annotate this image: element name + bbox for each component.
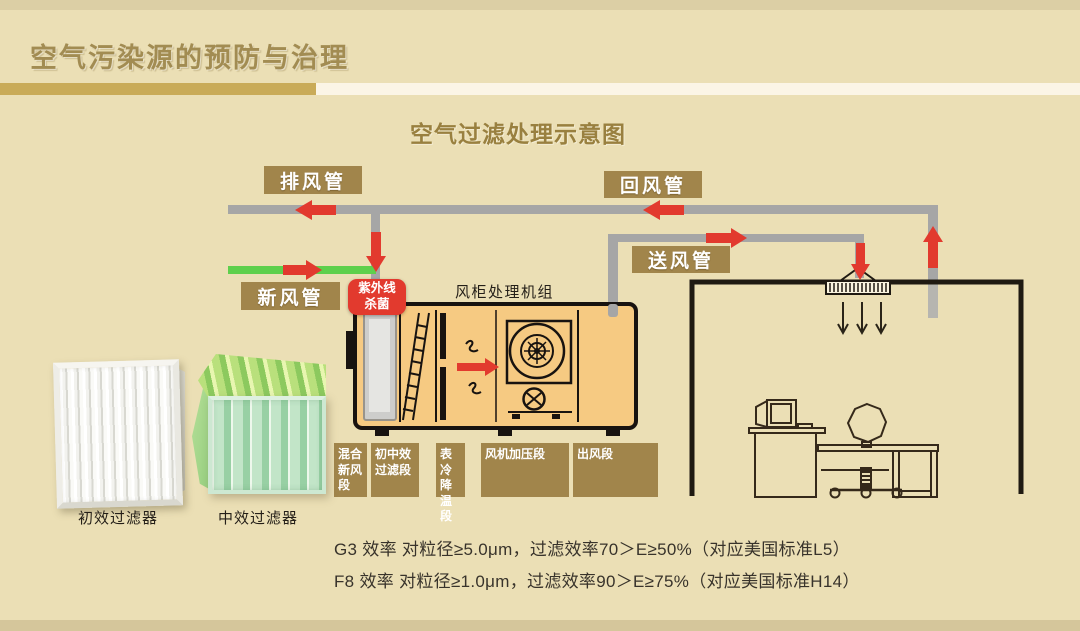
computer-monitor xyxy=(756,400,796,427)
medium-filter-bag-tops xyxy=(198,354,326,402)
ahu-section-outlet: 出风段 xyxy=(573,443,658,497)
primary-filter-pleats xyxy=(53,359,183,508)
fresh-air-arrow xyxy=(283,260,322,280)
uv-sterilize-badge: 紫外线 杀菌 xyxy=(348,279,406,315)
office-furniture xyxy=(749,400,938,498)
supply-arrow xyxy=(706,228,747,248)
medium-filter-front xyxy=(208,396,326,494)
ahu-section-fan: 风机加压段 xyxy=(481,443,569,497)
ahu-supply-stub xyxy=(608,304,618,317)
ahu-section-mixing: 混合新风段 xyxy=(334,443,367,497)
filter-caption-primary: 初效过滤器 xyxy=(78,507,158,528)
computer-desk xyxy=(749,428,825,497)
room-outline xyxy=(692,282,1021,496)
note-line-2: F8 效率 对粒径≥1.0μm，过滤效率90＞E≥75%（对应美国标准H14） xyxy=(334,567,860,592)
exhaust-arrow xyxy=(295,200,336,220)
return-duct-label: 回风管 xyxy=(604,171,702,198)
ahu-caption: 风柜处理机组 xyxy=(455,281,554,302)
ahu-section-cooling: 表冷降温段 xyxy=(436,443,465,497)
return-arrow xyxy=(643,200,684,220)
uv-badge-line2: 杀菌 xyxy=(364,297,389,313)
exhaust-duct-label: 排风管 xyxy=(264,166,362,194)
filter-caption-medium: 中效过滤器 xyxy=(218,507,298,528)
ahu-section-filter: 初中效过滤段 xyxy=(371,443,419,497)
airflow-down-arrows xyxy=(838,302,886,333)
fresh-air-duct-label: 新风管 xyxy=(241,282,340,310)
filter-photo-medium xyxy=(192,350,332,498)
uv-badge-line1: 紫外线 xyxy=(358,281,396,297)
return-duct-in-room xyxy=(928,280,938,318)
filter-photo-primary xyxy=(55,358,185,500)
slide: 空气污染源的预防与治理 空气过滤处理示意图 xyxy=(0,0,1080,631)
return-up-arrow xyxy=(923,226,943,268)
supply-duct-label: 送风管 xyxy=(632,246,730,273)
note-line-1: G3 效率 对粒径≥5.0μm，过滤效率70＞E≥50%（对应美国标准L5） xyxy=(334,535,850,560)
keyboard xyxy=(798,424,812,428)
